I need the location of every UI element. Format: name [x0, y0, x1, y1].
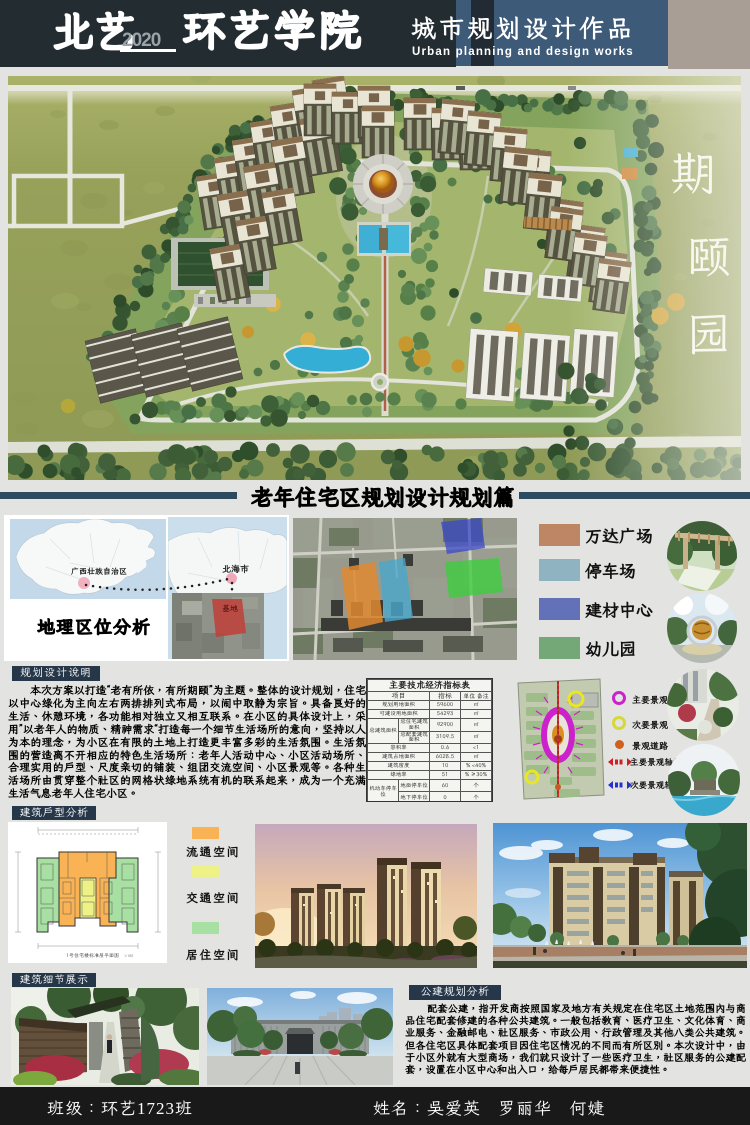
- svg-text:园: 园: [686, 304, 731, 363]
- svg-text:颐: 颐: [686, 226, 731, 285]
- svg-text:基地: 基地: [222, 604, 238, 614]
- svg-text:期: 期: [670, 140, 718, 204]
- svg-text:1号住宅楼标准层平面图: 1号住宅楼标准层平面图: [66, 952, 119, 959]
- svg-text:1:100: 1:100: [124, 953, 133, 958]
